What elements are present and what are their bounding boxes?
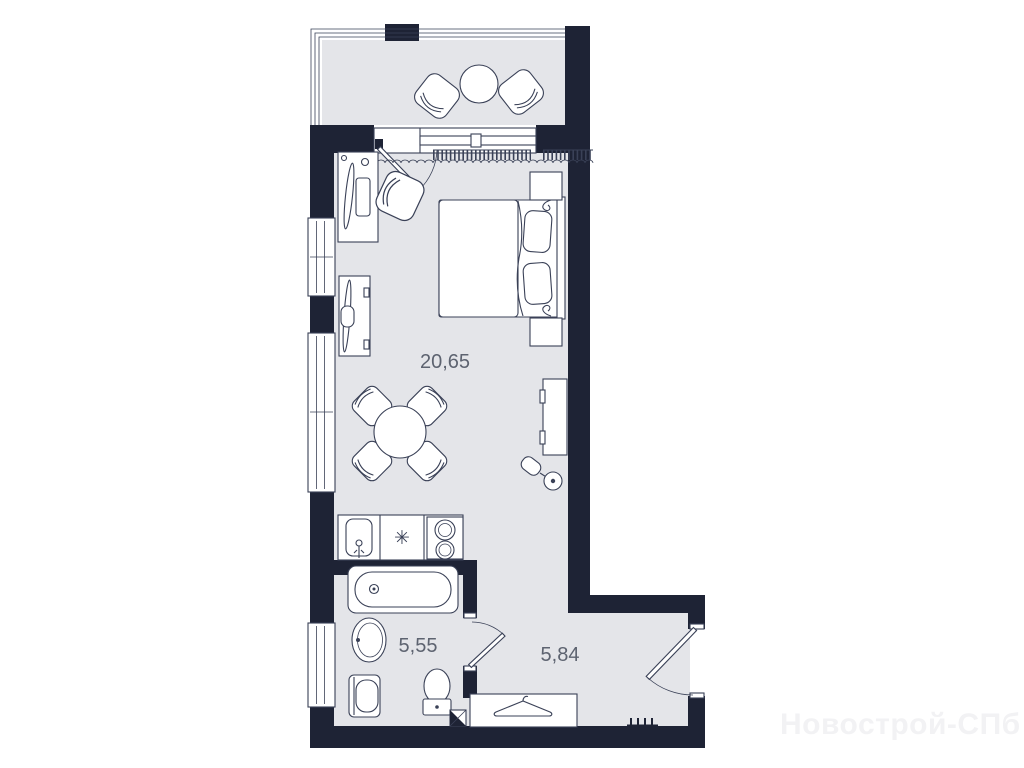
floor-plan: ✳ [0,0,1024,768]
window [308,623,335,707]
wall-segment [310,707,334,748]
tv-stand [540,379,567,455]
washbasin [352,618,386,662]
wall-segment [310,492,334,623]
wall-segment [310,726,705,748]
headboard [557,197,565,319]
wall-segment [310,153,334,218]
watermark: Новострой-СПб [780,708,1018,742]
wall-segment [568,125,590,613]
blanket [439,200,518,317]
living-room-area-label: 20,65 [420,351,470,373]
balcony-window-band [374,128,536,153]
hob-marker-symbol: ✳ [394,527,410,549]
pillow [523,210,553,253]
balcony-round-table [460,65,498,103]
window [308,333,335,492]
wall-segment [310,125,374,153]
wall-segment [385,24,419,41]
washing-machine [349,675,380,717]
kitchen-counter: ✳ [338,515,463,560]
dining-table [374,406,426,458]
hallway-area-label: 5,84 [541,644,580,666]
desk [338,152,378,242]
window [308,218,335,296]
floor-corridor [463,560,568,615]
mug [362,159,369,166]
toilet [423,669,451,715]
bathtub [348,566,458,613]
wardrobe [470,694,577,727]
pillow [523,262,553,305]
wall-segment [463,575,477,618]
hob [427,517,463,559]
entrance-door-frame [688,696,705,728]
kitchen-sink [346,519,372,558]
double-bed [439,197,565,319]
wall-segment [310,296,334,333]
wall-segment [568,595,705,613]
bathroom-area-label: 5,55 [399,635,438,657]
wall-segment [565,26,590,128]
keyboard [356,178,370,216]
dresser [339,276,370,356]
ventilation-shaft [450,710,466,726]
